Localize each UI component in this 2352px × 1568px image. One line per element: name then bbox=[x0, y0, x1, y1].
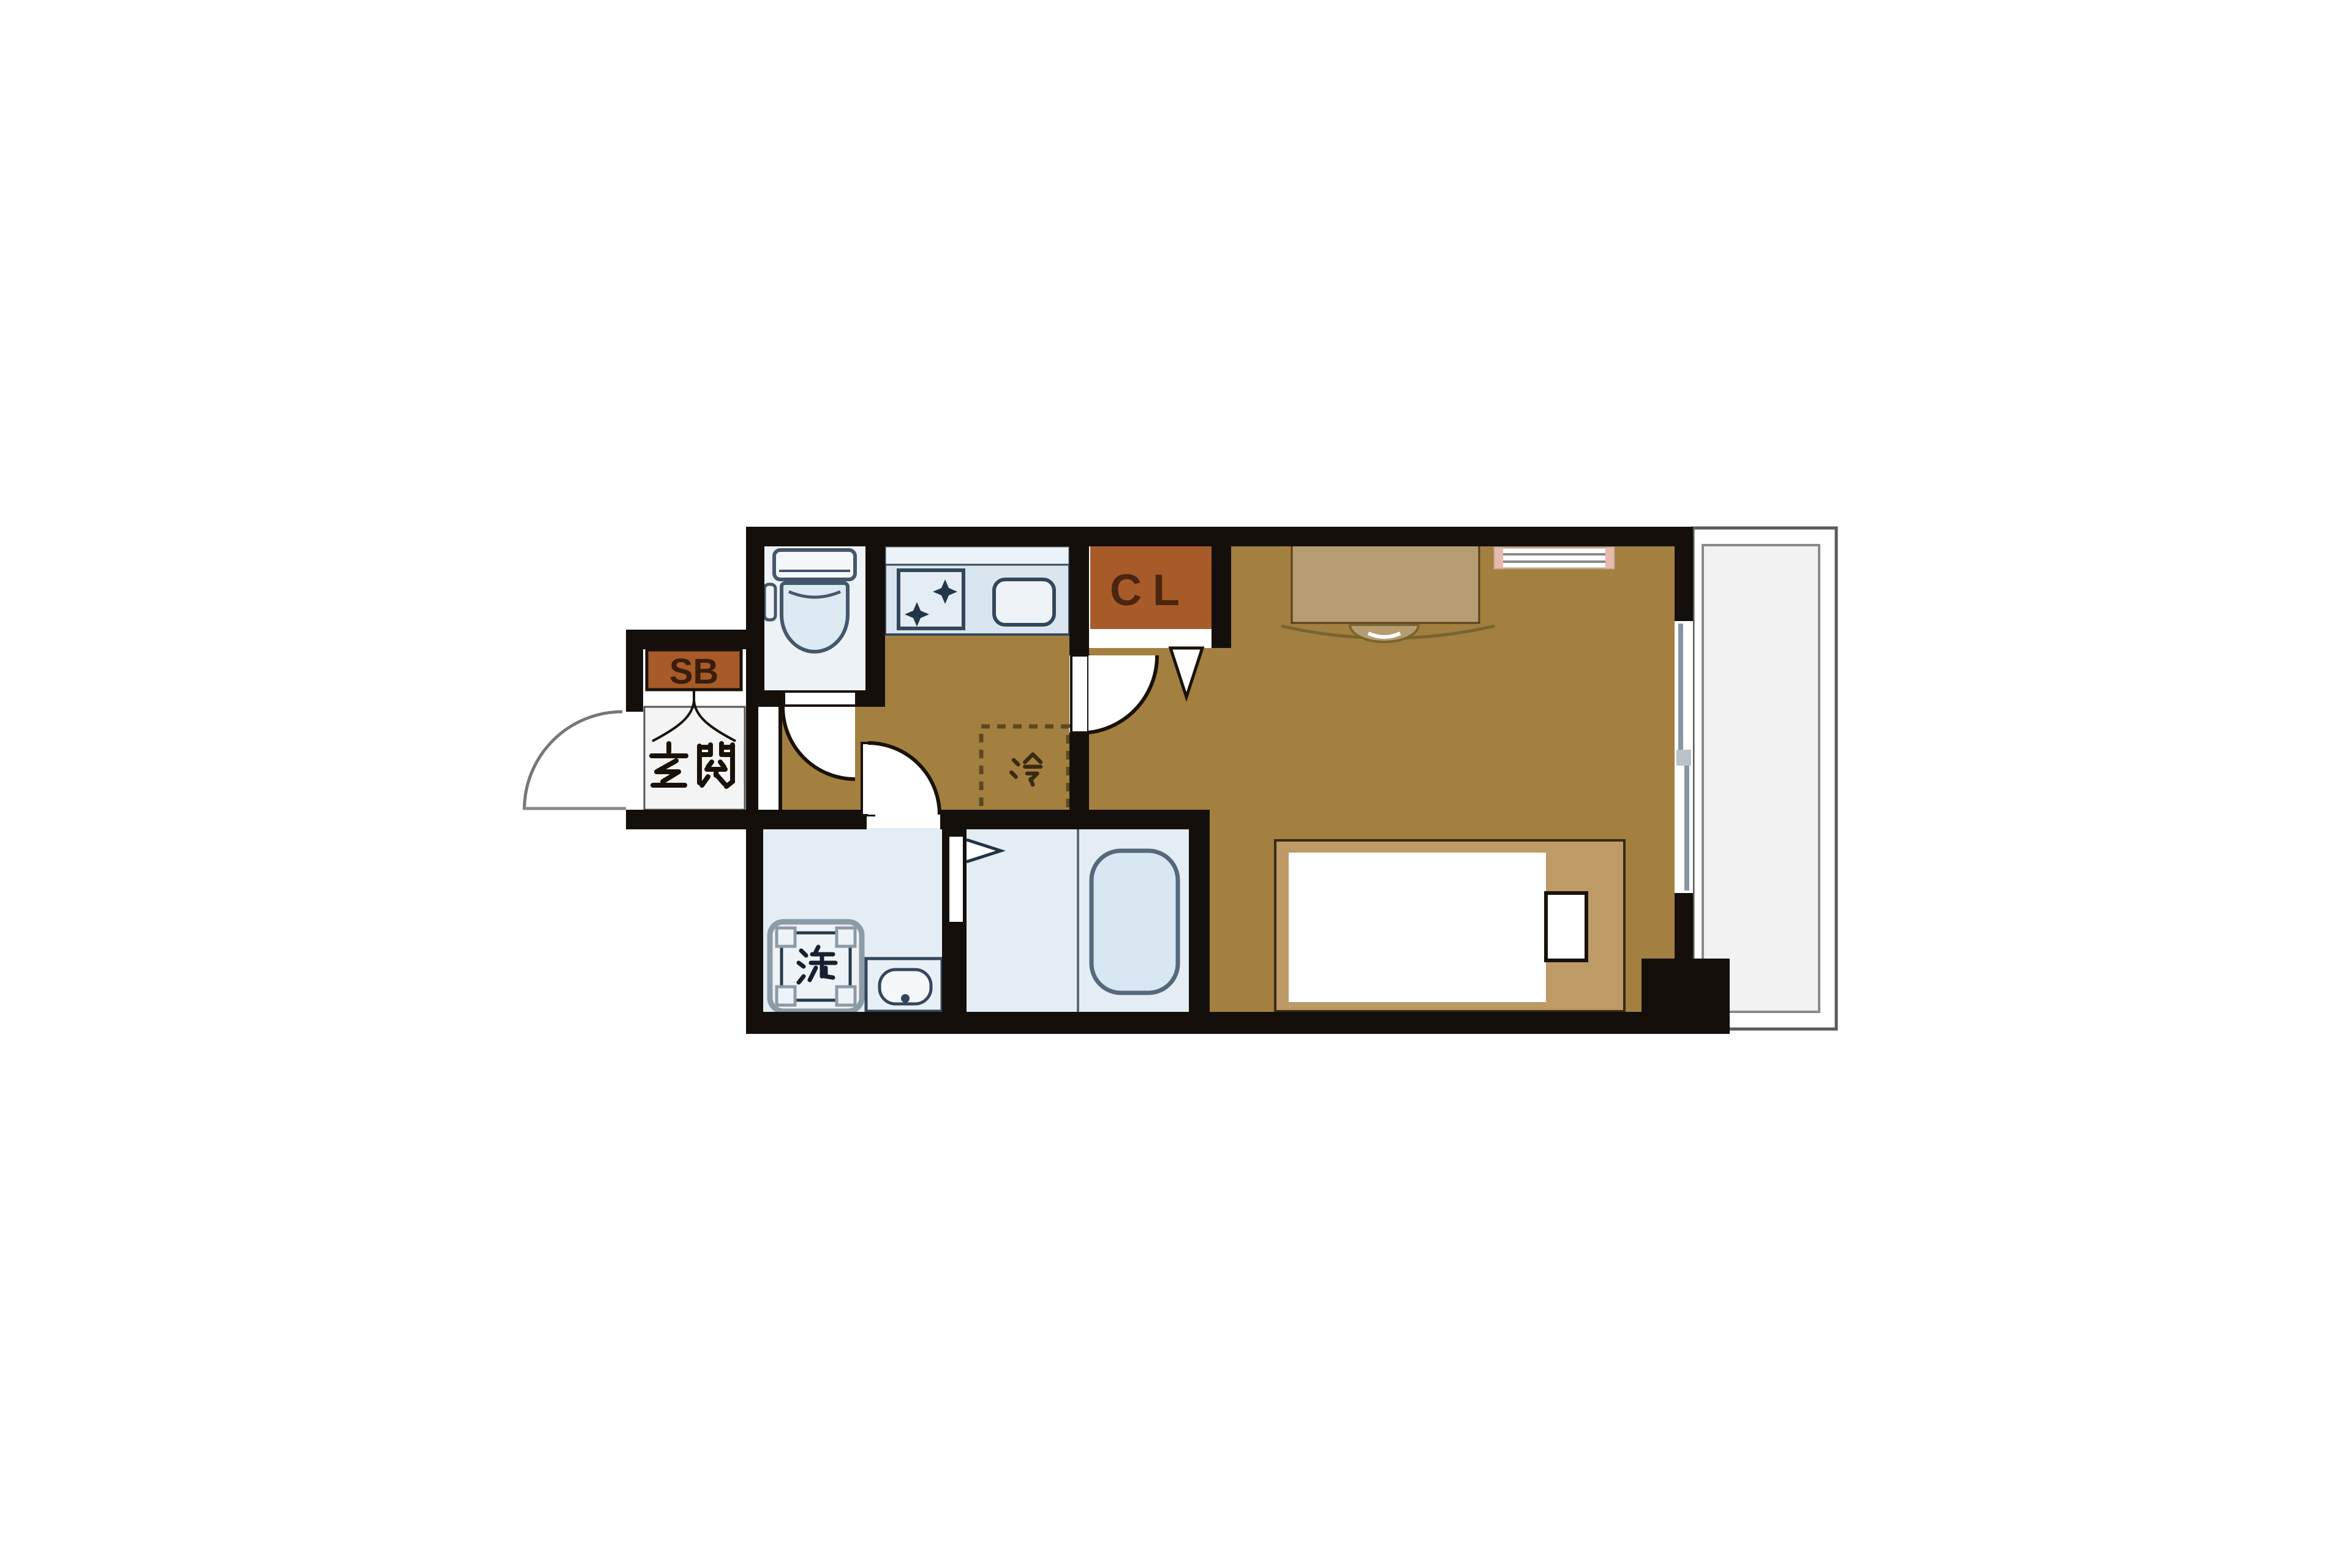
svg-text:CL: CL bbox=[1110, 566, 1191, 615]
svg-text:SB: SB bbox=[669, 652, 719, 692]
